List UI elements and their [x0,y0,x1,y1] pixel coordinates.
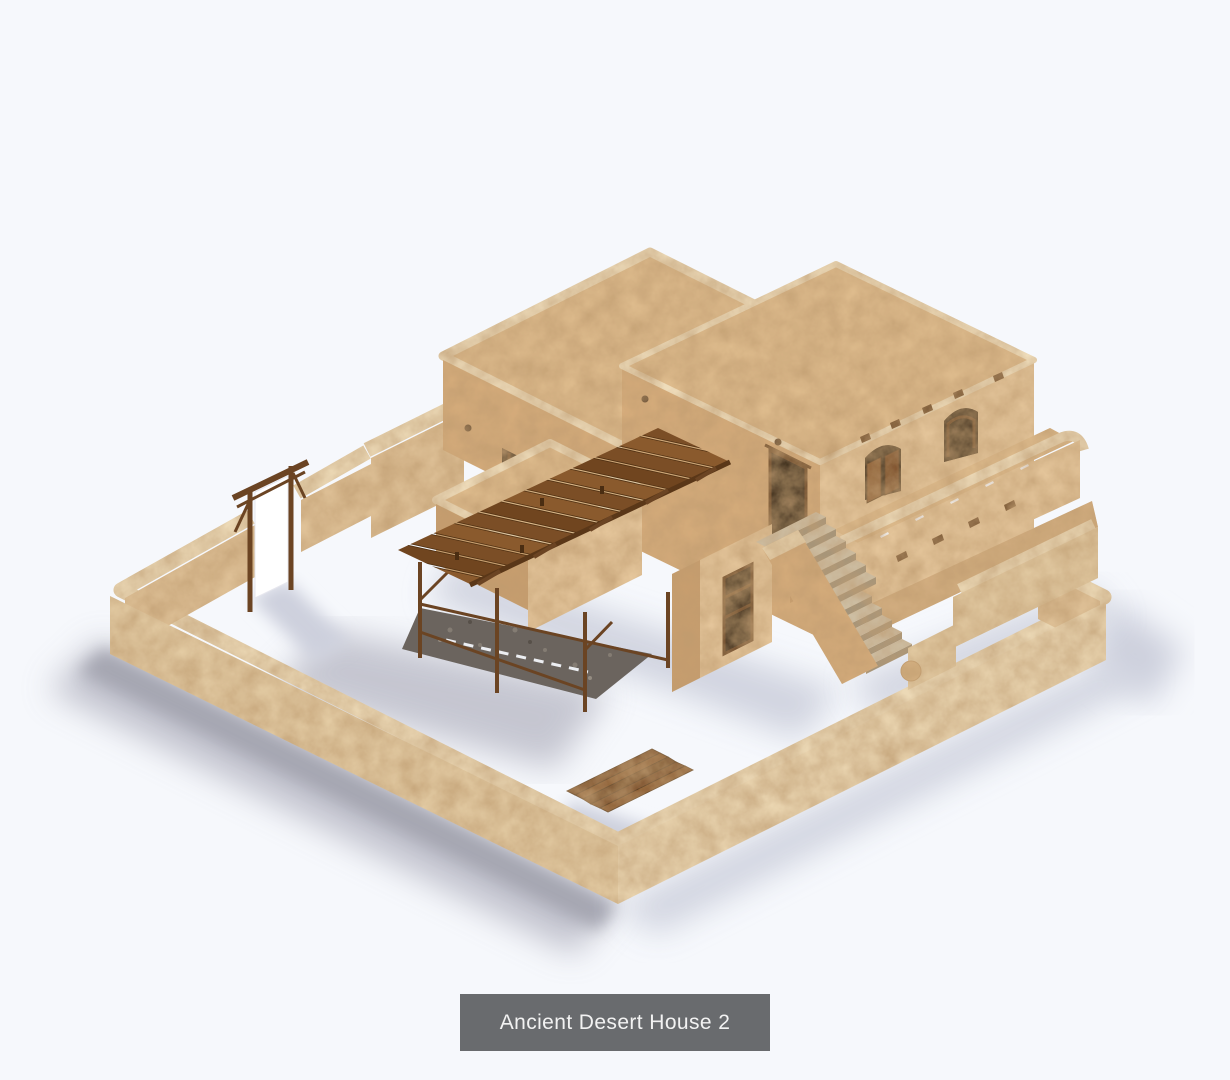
viga-hole [775,439,782,446]
model-title-badge: Ancient Desert House 2 [460,994,770,1051]
nook-wall-sw [672,560,700,692]
window-shutter [885,449,899,495]
house-render [0,0,1230,1080]
stair-newel [901,661,921,681]
viga-hole [465,425,472,432]
model-title: Ancient Desert House 2 [500,1011,731,1035]
window-shutter [867,457,881,503]
render-viewport [0,0,1230,1080]
viga-hole [642,396,649,403]
